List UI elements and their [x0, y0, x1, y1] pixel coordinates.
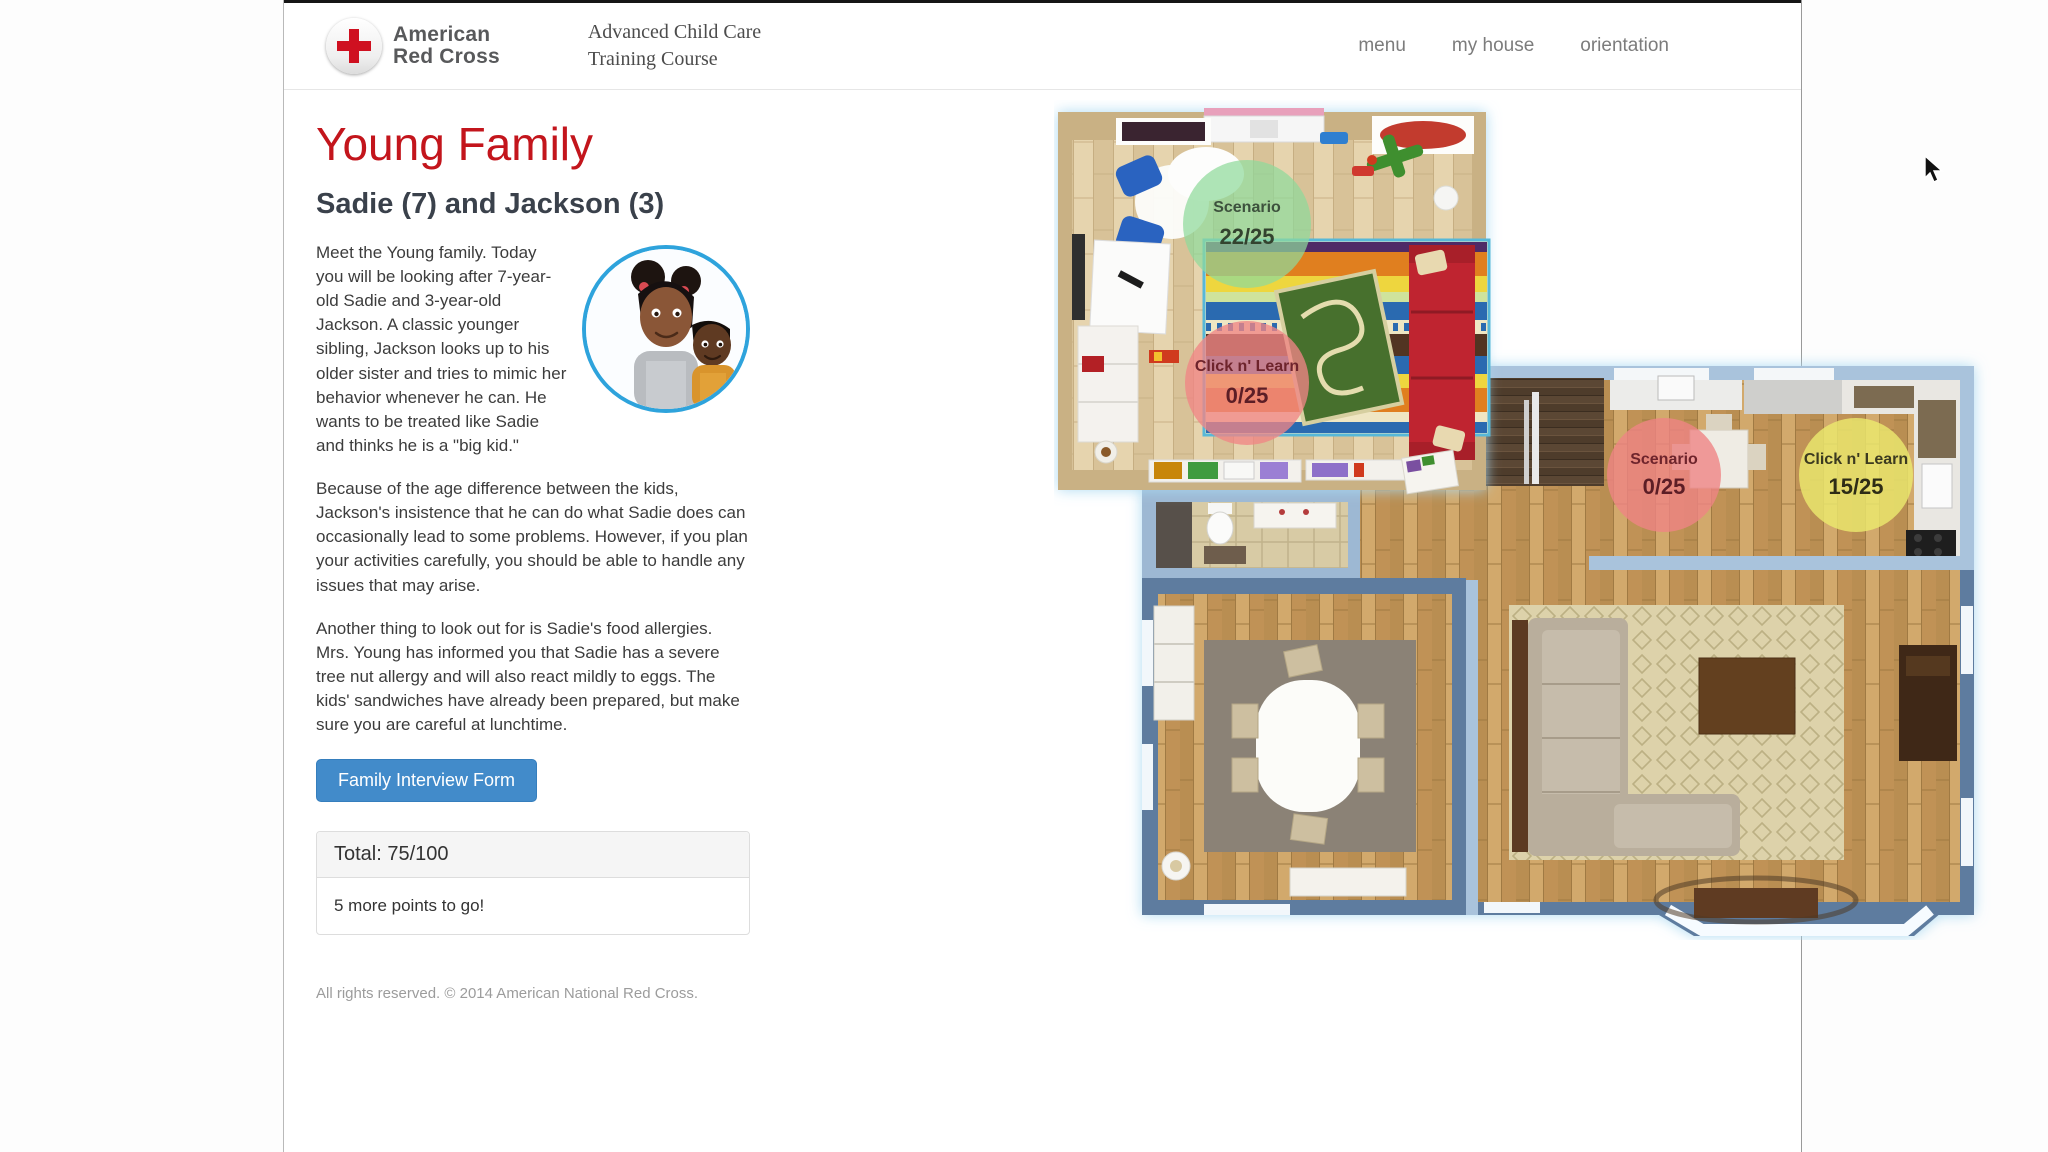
kitchen-living-wall: [1589, 556, 1974, 570]
age-difference-paragraph: Because of the age difference between th…: [316, 477, 750, 598]
hotspot-score-label: 0/25: [1226, 383, 1269, 408]
bedroom-interior: [1072, 108, 1489, 494]
children-subtitle: Sadie (7) and Jackson (3): [316, 188, 750, 221]
score-panel: Total: 75/100 5 more points to go!: [316, 831, 750, 935]
brand-line1: American: [393, 24, 500, 46]
page-title: Young Family: [316, 118, 750, 171]
mouse-cursor: [1922, 155, 1948, 185]
hotspot-bedroom-click-n-learn[interactable]: Click n' Learn 0/25: [1185, 321, 1309, 445]
copyright-text: All rights reserved. © 2014 American Nat…: [316, 985, 750, 1002]
hotspot-score-label: 22/25: [1219, 224, 1274, 249]
nav-orientation[interactable]: orientation: [1580, 35, 1669, 57]
family-avatar: [582, 245, 750, 413]
family-interview-form-button[interactable]: Family Interview Form: [316, 759, 537, 802]
staircase: [1478, 378, 1604, 486]
course-line2: Training Course: [588, 46, 761, 73]
nav-my-house[interactable]: my house: [1452, 35, 1534, 57]
bathroom-room[interactable]: [1142, 490, 1360, 578]
brand-line2: Red Cross: [393, 46, 500, 68]
family-avatar-illustration: [586, 249, 746, 409]
dining-room[interactable]: [1142, 578, 1466, 915]
hotspot-type-label: Scenario: [1213, 199, 1281, 216]
hotspot-kitchen-scenario[interactable]: Scenario 0/25: [1607, 418, 1721, 532]
hotspot-kitchen-click-n-learn[interactable]: Click n' Learn 15/25: [1799, 418, 1913, 532]
red-sofa: [1409, 245, 1475, 460]
family-info-panel: Young Family Sadie (7) and Jackson (3): [316, 118, 750, 1002]
score-remaining: 5 more points to go!: [317, 878, 749, 934]
house-floorplan: Scenario 22/25 Click n' Learn 0/25 Scena…: [1054, 100, 1994, 940]
red-cross-logo: American Red Cross: [326, 18, 500, 74]
hotspot-type-label: Scenario: [1630, 451, 1698, 468]
score-total: Total: 75/100: [317, 832, 749, 878]
course-line1: Advanced Child Care: [588, 19, 761, 46]
nav-menu[interactable]: menu: [1358, 35, 1406, 57]
browser-page: American Red Cross Advanced Child Care T…: [283, 0, 1802, 1152]
site-header: American Red Cross Advanced Child Care T…: [284, 3, 1801, 90]
brand-name: American Red Cross: [393, 24, 500, 68]
main-nav: menu my house orientation: [1358, 35, 1669, 57]
living-room[interactable]: [1478, 570, 1974, 936]
hotspot-type-label: Click n' Learn: [1804, 451, 1908, 468]
screen: American Red Cross Advanced Child Care T…: [0, 0, 2048, 1152]
red-cross-icon: [326, 18, 382, 74]
allergies-paragraph: Another thing to look out for is Sadie's…: [316, 617, 750, 738]
hotspot-bedroom-scenario[interactable]: Scenario 22/25: [1183, 160, 1311, 288]
hotspot-type-label: Click n' Learn: [1195, 358, 1299, 375]
hotspot-score-label: 15/25: [1828, 474, 1883, 499]
hotspot-score-label: 0/25: [1643, 474, 1686, 499]
course-title: Advanced Child Care Training Course: [588, 19, 761, 73]
